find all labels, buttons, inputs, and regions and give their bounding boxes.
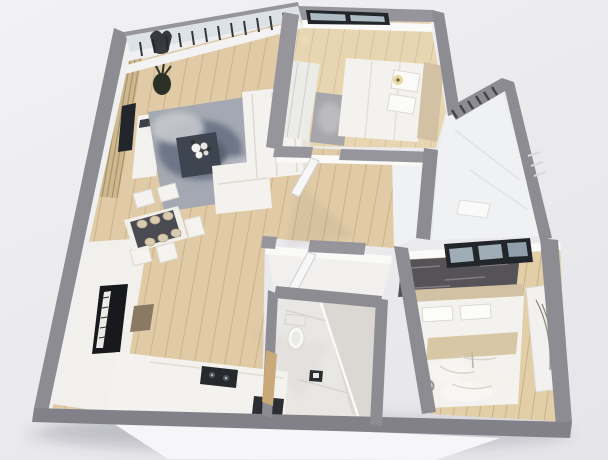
window-plant-silhouette xyxy=(150,30,172,54)
wall-bedroom2-bottom-a xyxy=(273,146,313,158)
pillow xyxy=(460,304,491,320)
pillow xyxy=(422,306,453,322)
floorplan-render xyxy=(0,0,608,460)
floor-drain xyxy=(309,370,323,382)
ceiling-light xyxy=(301,36,309,44)
floorplan-svg xyxy=(0,0,608,460)
pillow xyxy=(387,94,416,114)
wall-hall-south-a xyxy=(261,236,277,249)
